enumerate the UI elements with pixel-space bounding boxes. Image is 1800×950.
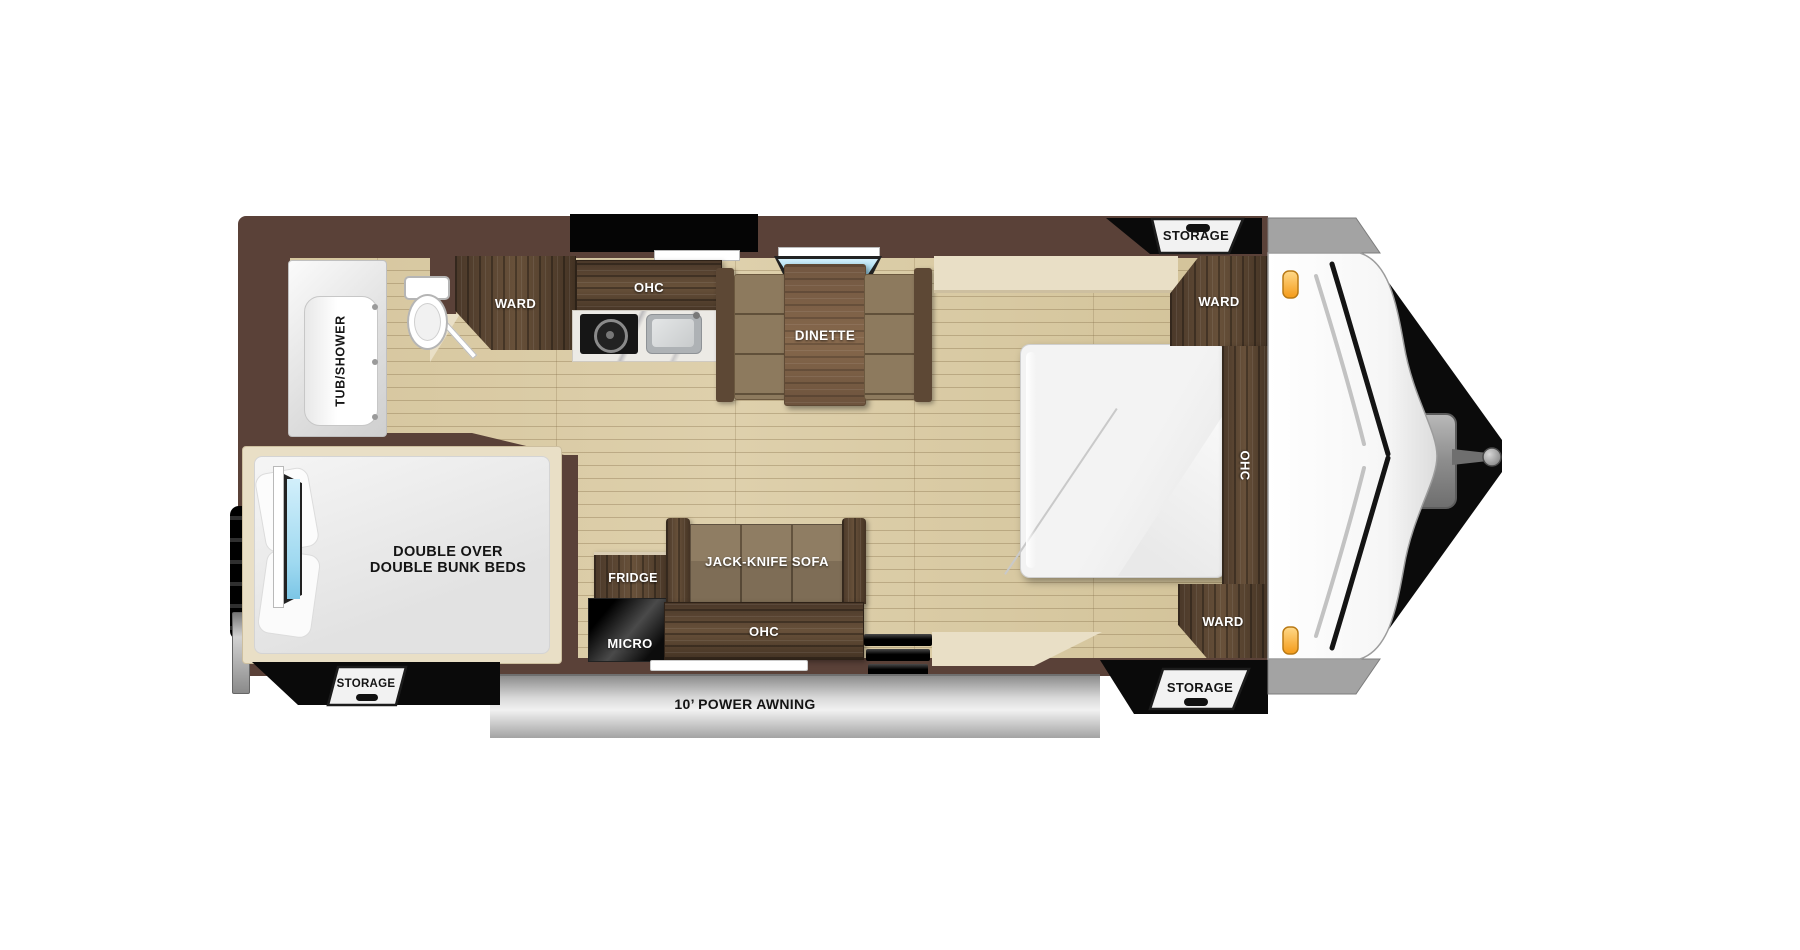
exterior-overlay bbox=[0, 0, 1800, 950]
storage-left-label: STORAGE bbox=[330, 678, 402, 690]
storage-right-label: STORAGE bbox=[1156, 680, 1244, 695]
hitch-ball bbox=[1483, 448, 1501, 466]
marker-light-top bbox=[1283, 271, 1298, 298]
marker-light-bottom bbox=[1283, 627, 1298, 654]
awning-label: 10’ POWER AWNING bbox=[630, 696, 860, 712]
storage-hatch-right-handle bbox=[1184, 698, 1208, 706]
cap-roof-bottom bbox=[1268, 659, 1380, 694]
cap-roof-top bbox=[1268, 218, 1380, 253]
front-cap bbox=[1268, 253, 1437, 659]
floorplan-stage: TUB/SHOWER DOUBLE OVER DOUBLE BUNK BEDS … bbox=[0, 0, 1800, 950]
storage-hatch-left-handle bbox=[356, 694, 378, 701]
storage-top-label: STORAGE bbox=[1152, 228, 1240, 243]
